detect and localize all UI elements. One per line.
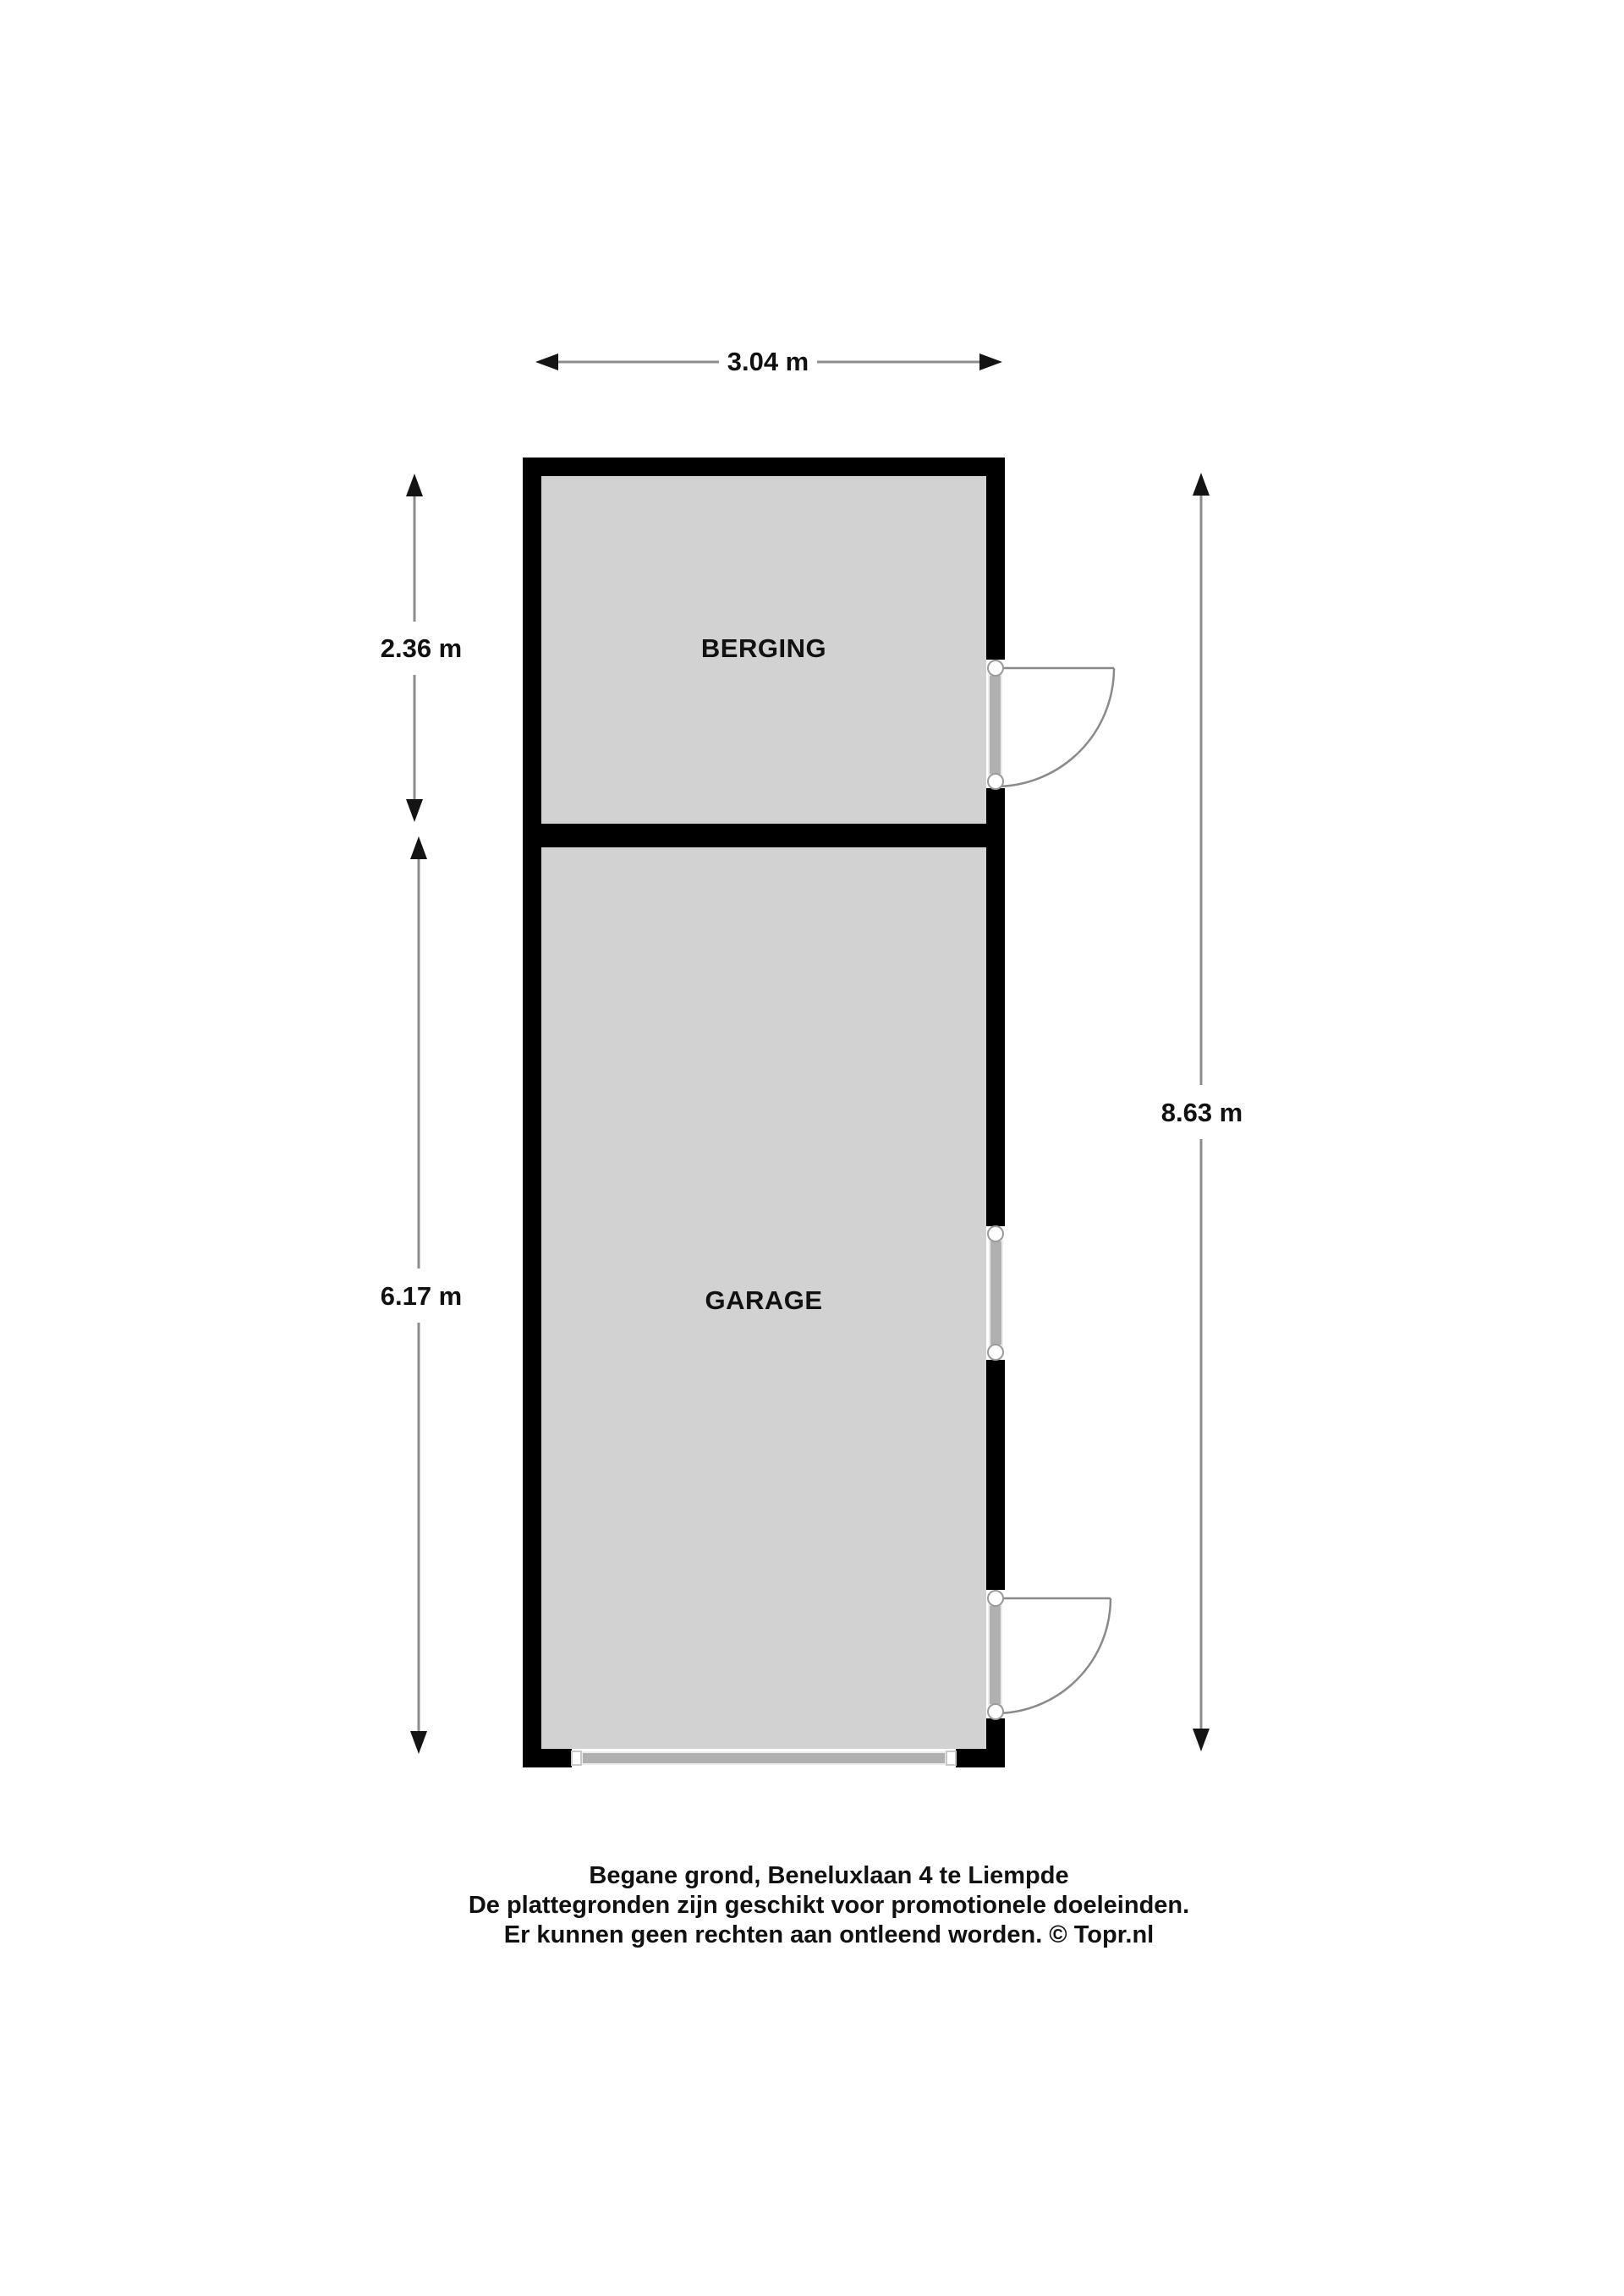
garage-overhead-door — [572, 1749, 956, 1767]
dim-berging-height-label: 2.36 m — [381, 633, 463, 663]
dim-total-height: 8.63 m — [1161, 473, 1243, 1751]
berging-room-label: BERGING — [701, 633, 826, 663]
window-end-dot — [988, 1345, 1003, 1360]
garage-side-door — [986, 1590, 1111, 1719]
arrow-down-icon — [406, 799, 423, 822]
dim-garage-height: 6.17 m — [381, 836, 463, 1754]
dim-width-top: 3.04 m — [535, 347, 1002, 376]
overhead-door-endcap — [946, 1751, 956, 1765]
arrow-up-icon — [406, 474, 423, 496]
overhead-door-endcap — [572, 1751, 581, 1765]
arrow-up-icon — [1193, 473, 1210, 496]
overhead-garage-door-icon — [582, 1752, 946, 1764]
arrow-down-icon — [1193, 1729, 1210, 1751]
door-hinge-icon — [988, 660, 1003, 676]
footer-disclaimer-line-1: De plattegronden zijn geschikt voor prom… — [469, 1892, 1189, 1919]
arrow-up-icon — [410, 836, 427, 859]
window-end-dot — [988, 1226, 1003, 1241]
door-hinge-icon — [988, 1591, 1003, 1606]
arrow-right-icon — [979, 353, 1002, 370]
door-leaf — [989, 1605, 1001, 1705]
garage-room-label: GARAGE — [705, 1285, 822, 1315]
footer-disclaimer-line-2: Er kunnen geen rechten aan ontleend word… — [504, 1921, 1155, 1948]
floor-plan-canvas: BERGING GARAGE 3.04 m 2.36 m 6.17 m — [0, 0, 1624, 2296]
arrow-down-icon — [410, 1731, 427, 1754]
door-leaf — [989, 675, 1001, 775]
dim-total-height-label: 8.63 m — [1161, 1098, 1243, 1127]
door-swing-icon — [996, 668, 1114, 786]
dim-width-top-label: 3.04 m — [727, 347, 809, 376]
door-hinge-icon — [988, 1704, 1003, 1719]
door-hinge-icon — [988, 774, 1003, 789]
footer: Begane grond, Beneluxlaan 4 te Liempde D… — [469, 1862, 1189, 1948]
footer-title-line: Begane grond, Beneluxlaan 4 te Liempde — [589, 1862, 1068, 1889]
dim-garage-height-label: 6.17 m — [381, 1281, 463, 1311]
dim-berging-height: 2.36 m — [381, 474, 463, 822]
arrow-left-icon — [535, 353, 558, 370]
door-swing-icon — [996, 1598, 1111, 1713]
garage-window — [986, 1226, 1005, 1360]
window-icon — [990, 1241, 1002, 1345]
berging-door — [986, 660, 1114, 789]
